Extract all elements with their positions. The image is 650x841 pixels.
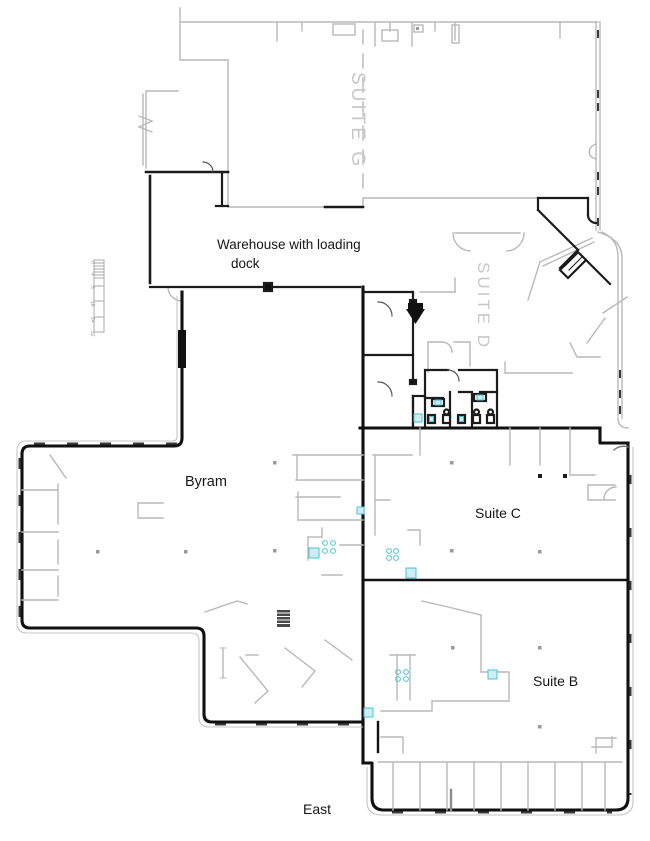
- suite-c-door-marks: [538, 474, 567, 478]
- outer-wall-lines: [17, 296, 633, 815]
- scale-tick-1: 4: [89, 273, 95, 276]
- walls-suite-b: [378, 601, 622, 810]
- scale-bar: 0 4 8 16 24 32: [89, 260, 104, 337]
- floorplan-canvas: 0 4 8 16 24 32 SUITE G SUITE D Warehouse…: [0, 0, 650, 841]
- stair-hatch: [277, 610, 290, 627]
- label-suite-c: Suite C: [475, 505, 521, 521]
- scale-tick-0: 0: [89, 261, 95, 264]
- walls-suite-g: [139, 8, 600, 230]
- label-suite-d: SUITE D: [474, 262, 493, 350]
- label-suite-b: Suite B: [533, 673, 578, 689]
- scale-tick-2: 8: [89, 286, 95, 289]
- walls-restrooms: [413, 370, 497, 428]
- entry-vestibule: [538, 198, 610, 284]
- walls-suite-c: [373, 428, 628, 545]
- label-byram: Byram: [185, 474, 227, 490]
- scale-tick-5: 32: [89, 331, 95, 337]
- label-east: East: [303, 801, 331, 817]
- label-warehouse-line2: dock: [231, 256, 260, 271]
- floorplan-page: 0 4 8 16 24 32 SUITE G SUITE D Warehouse…: [0, 0, 650, 841]
- entry-arrow-icon: [406, 303, 425, 324]
- label-warehouse-line1: Warehouse with loading: [217, 237, 361, 252]
- walls-warehouse: [146, 162, 363, 291]
- scale-tick-3: 16: [89, 301, 95, 307]
- walls-byram: [22, 455, 363, 703]
- column-markers: [96, 27, 542, 729]
- scale-tick-4: 24: [89, 317, 95, 323]
- label-suite-g: SUITE G: [347, 72, 368, 169]
